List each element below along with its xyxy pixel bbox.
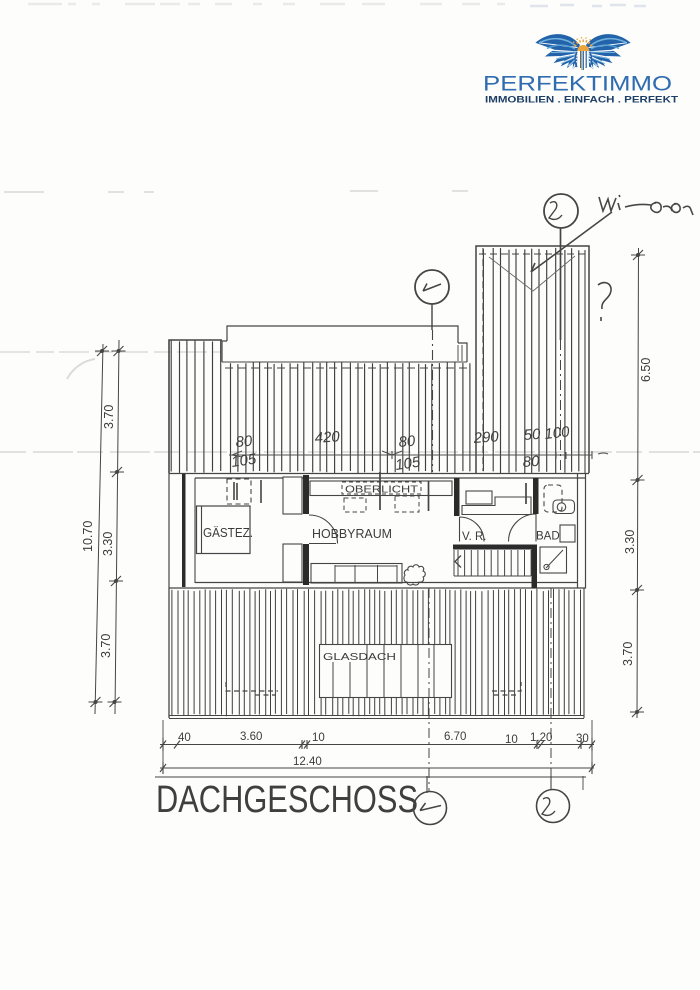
- svg-text:50: 50: [523, 426, 541, 444]
- svg-text:PERFEKTIMMO: PERFEKTIMMO: [483, 72, 672, 96]
- svg-text:420: 420: [314, 428, 341, 447]
- svg-text:DACHGESCHOSS: DACHGESCHOSS: [156, 779, 418, 821]
- svg-text:3.70: 3.70: [99, 634, 113, 658]
- svg-text:HOBBYRAUM: HOBBYRAUM: [312, 527, 392, 541]
- svg-text:3.30: 3.30: [623, 530, 637, 554]
- svg-text:1.20: 1.20: [530, 732, 552, 744]
- svg-text:3.70: 3.70: [621, 642, 635, 666]
- svg-text:80: 80: [398, 433, 417, 451]
- svg-text:GÄSTEZ.: GÄSTEZ.: [203, 526, 253, 540]
- svg-text:3.60: 3.60: [240, 731, 262, 743]
- svg-text:100: 100: [544, 423, 571, 443]
- svg-text:105: 105: [230, 451, 258, 471]
- svg-text:10: 10: [312, 732, 325, 744]
- svg-text:OBERLICHT: OBERLICHT: [345, 485, 418, 496]
- svg-text:BAD: BAD: [536, 531, 560, 543]
- svg-text:30: 30: [576, 733, 589, 745]
- svg-text:3.70: 3.70: [102, 405, 116, 429]
- svg-text:6.50: 6.50: [639, 358, 653, 382]
- svg-text:V. R.: V. R.: [462, 531, 487, 543]
- svg-text:10: 10: [505, 734, 518, 746]
- svg-text:3.30: 3.30: [101, 532, 115, 556]
- svg-text:12.40: 12.40: [293, 756, 322, 768]
- svg-text:IMMOBILIEN . EINFACH . PERFEKT: IMMOBILIEN . EINFACH . PERFEKT: [485, 95, 678, 106]
- svg-text:6.70: 6.70: [444, 731, 466, 743]
- svg-text:GLASDACH: GLASDACH: [323, 651, 396, 663]
- svg-text:40: 40: [178, 732, 191, 744]
- svg-text:290: 290: [472, 428, 500, 447]
- svg-text:80: 80: [235, 433, 254, 451]
- svg-text:105: 105: [394, 454, 422, 474]
- svg-text:80: 80: [522, 453, 540, 471]
- svg-text:10.70: 10.70: [81, 521, 95, 552]
